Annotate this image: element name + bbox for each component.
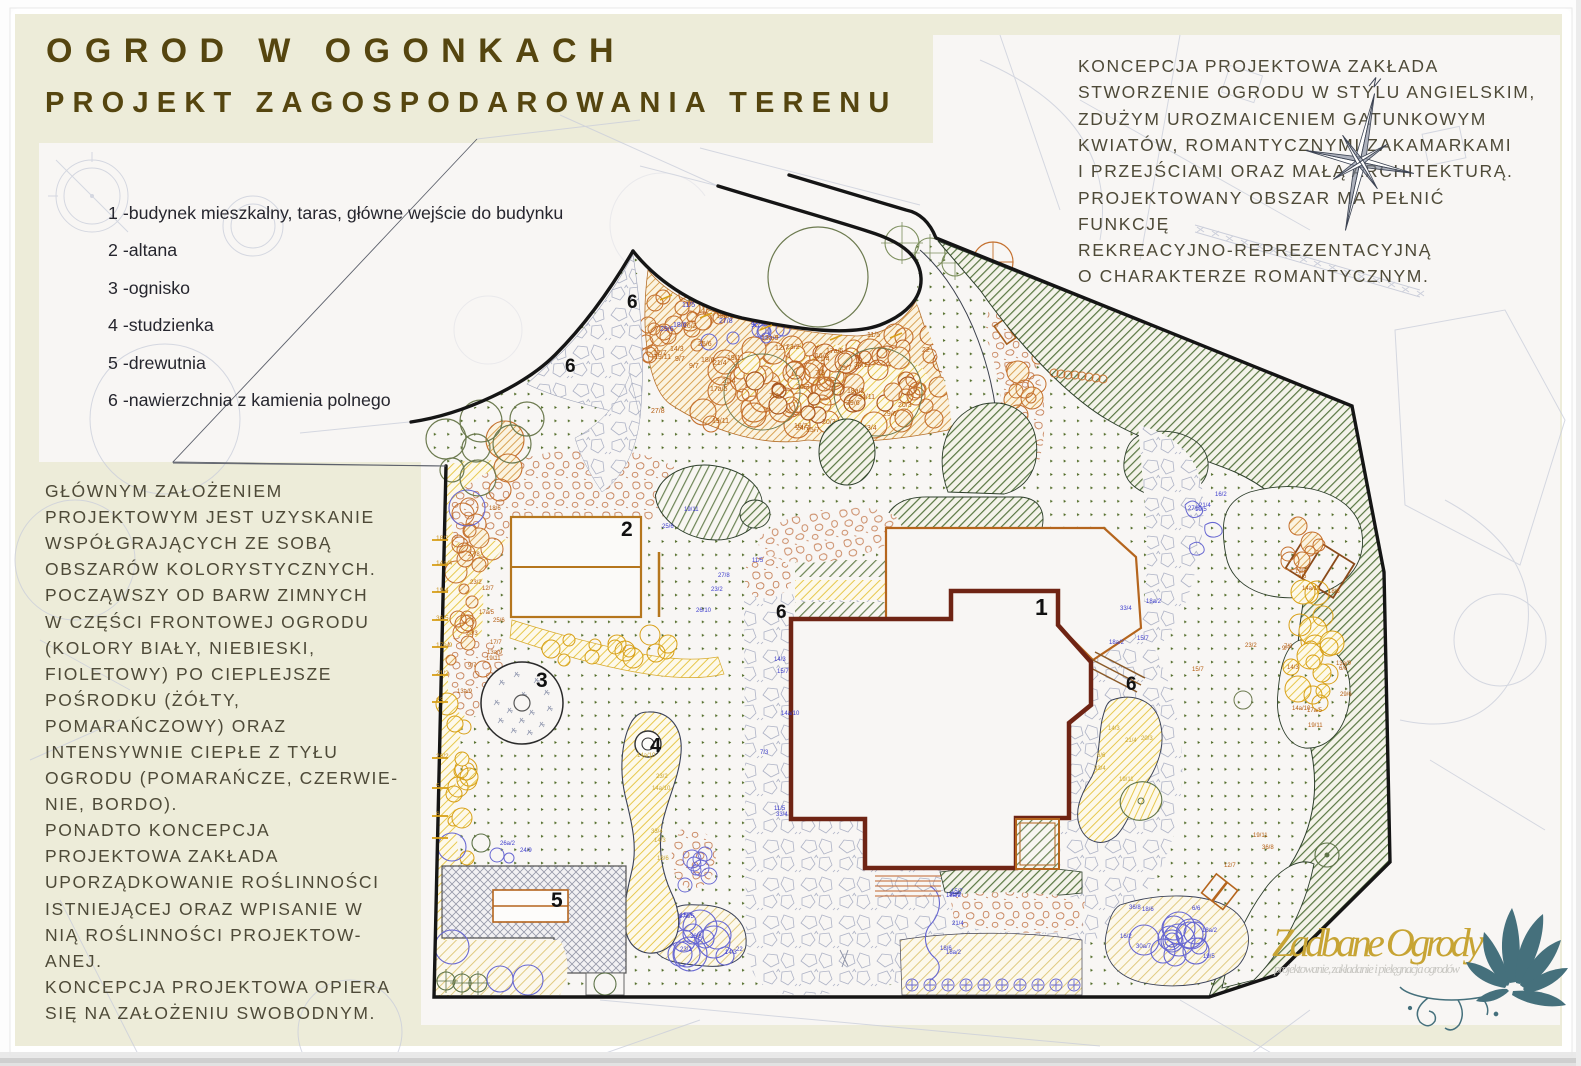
svg-text:KWIATÓW, ROMANTYCZNYMI ZAKAMAR: KWIATÓW, ROMANTYCZNYMI ZAKAMARKAMI <box>1078 134 1512 155</box>
svg-text:29/6: 29/6 <box>846 400 860 407</box>
svg-text:33/4: 33/4 <box>1120 606 1132 612</box>
svg-text:17a/5: 17a/5 <box>479 610 495 616</box>
svg-text:ISTNIEJĄCEJ ORAZ WPISANIE W: ISTNIEJĄCEJ ORAZ WPISANIE W <box>45 899 363 919</box>
svg-text:18/6: 18/6 <box>657 856 669 862</box>
svg-text:PONADTO KONCEPCJA: PONADTO KONCEPCJA <box>45 820 270 840</box>
svg-text:5: 5 <box>436 783 440 790</box>
svg-text:27/8: 27/8 <box>718 573 730 579</box>
svg-text:9/7: 9/7 <box>468 663 477 669</box>
svg-text:13a/9: 13a/9 <box>1336 661 1352 667</box>
svg-text:36/8: 36/8 <box>1129 905 1141 911</box>
svg-text:6: 6 <box>776 602 787 623</box>
svg-text:14a/10: 14a/10 <box>781 711 800 717</box>
svg-text:22: 22 <box>922 347 930 354</box>
svg-text:6 -nawierzchnia z kamienia pol: 6 -nawierzchnia z kamienia polnego <box>108 390 391 410</box>
svg-text:27/8: 27/8 <box>1188 506 1200 512</box>
svg-text:21/4: 21/4 <box>722 378 736 385</box>
svg-text:6/6: 6/6 <box>1192 906 1201 912</box>
svg-text:18a/2: 18a/2 <box>847 388 865 395</box>
svg-text:W CZĘŚCI FRONTOWEJ OGRODU: W CZĘŚCI FRONTOWEJ OGRODU <box>45 611 370 632</box>
svg-text:6/6: 6/6 <box>1097 753 1106 759</box>
svg-text:21/2: 21/2 <box>436 670 449 677</box>
svg-text:FUNKCJĘ: FUNKCJĘ <box>1078 214 1170 234</box>
svg-text:6: 6 <box>627 292 638 313</box>
svg-text:23/2: 23/2 <box>470 580 482 586</box>
svg-text:14a/10: 14a/10 <box>652 786 671 792</box>
svg-text:3 -ognisko: 3 -ognisko <box>108 278 190 298</box>
svg-text:INTENSYWNIE CIEPŁE Z TYŁU: INTENSYWNIE CIEPŁE Z TYŁU <box>45 742 338 762</box>
svg-text:15/7: 15/7 <box>1192 667 1204 673</box>
svg-text:18/2: 18/2 <box>436 535 449 542</box>
svg-text:projektowanie, zakładanie i pi: projektowanie, zakładanie i pielęgnacja … <box>1273 962 1461 976</box>
svg-text:POŚRODKU (ŻÓŁTY,: POŚRODKU (ŻÓŁTY, <box>45 689 240 710</box>
svg-text:23/2: 23/2 <box>680 947 692 953</box>
svg-text:21/4: 21/4 <box>1199 503 1211 509</box>
svg-text:7/3: 7/3 <box>760 750 769 756</box>
svg-text:NIE, BORDO).: NIE, BORDO). <box>45 794 178 814</box>
svg-text:OGROD W OGONKACH: OGROD W OGONKACH <box>46 32 626 70</box>
svg-text:14/3: 14/3 <box>1287 665 1299 671</box>
svg-text:20/3: 20/3 <box>898 402 912 409</box>
svg-text:9/7: 9/7 <box>675 356 685 363</box>
svg-text:19/5: 19/5 <box>1295 569 1307 575</box>
svg-text:30a/7: 30a/7 <box>1136 944 1152 950</box>
svg-text:O CHARAKTERZE ROMANTYCZNYM.: O CHARAKTERZE ROMANTYCZNYM. <box>1078 266 1429 286</box>
svg-text:23/2: 23/2 <box>1245 643 1257 649</box>
svg-text:26/10: 26/10 <box>696 608 712 614</box>
svg-text:PROJEKTOWA ZAKŁADA: PROJEKTOWA ZAKŁADA <box>45 846 279 866</box>
svg-text:OGRODU (POMARAŃCZE, CZERWIE-: OGRODU (POMARAŃCZE, CZERWIE- <box>45 768 399 788</box>
svg-text:25/6: 25/6 <box>493 618 505 624</box>
svg-text:26a/2: 26a/2 <box>500 841 516 847</box>
svg-text:9/7: 9/7 <box>1282 646 1291 652</box>
svg-text:11/5: 11/5 <box>867 332 880 339</box>
svg-text:15/7: 15/7 <box>680 913 692 919</box>
svg-text:1: 1 <box>1035 594 1048 620</box>
svg-text:6: 6 <box>436 811 440 818</box>
svg-text:17a/5: 17a/5 <box>826 348 844 355</box>
svg-text:18a/2: 18a/2 <box>1202 928 1218 934</box>
svg-text:5: 5 <box>551 889 563 912</box>
svg-text:16/2: 16/2 <box>1215 492 1227 498</box>
svg-text:18a/2: 18a/2 <box>1146 599 1162 605</box>
svg-text:11/5: 11/5 <box>752 558 764 564</box>
svg-text:18/6: 18/6 <box>673 322 687 329</box>
svg-text:18/6: 18/6 <box>1142 907 1154 913</box>
svg-text:25/6: 25/6 <box>662 524 674 530</box>
svg-text:19/4: 19/4 <box>436 587 449 594</box>
svg-text:WSPÓŁGRAJĄCYCH ZE SOBĄ: WSPÓŁGRAJĄCYCH ZE SOBĄ <box>45 532 332 553</box>
svg-text:I PRZEJŚCIAMI ORAZ MAŁĄ ARCHIT: I PRZEJŚCIAMI ORAZ MAŁĄ ARCHITEKTURĄ. <box>1078 160 1514 181</box>
svg-text:PROJEKTOWYM JEST UZYSKANIE: PROJEKTOWYM JEST UZYSKANIE <box>45 507 375 527</box>
svg-text:19/11: 19/11 <box>1253 833 1268 839</box>
svg-text:4 -studzienka: 4 -studzienka <box>108 315 214 335</box>
svg-text:21/4: 21/4 <box>1125 738 1137 744</box>
svg-text:15/7: 15/7 <box>838 365 852 372</box>
svg-text:24/9: 24/9 <box>520 848 532 854</box>
svg-text:27/8: 27/8 <box>651 408 665 415</box>
svg-text:POMARAŃCZOWY) ORAZ: POMARAŃCZOWY) ORAZ <box>45 716 287 736</box>
svg-text:18/6: 18/6 <box>1328 589 1340 595</box>
svg-text:12/7: 12/7 <box>482 586 494 592</box>
svg-text:14/3: 14/3 <box>725 950 737 956</box>
svg-text:16/2: 16/2 <box>1120 934 1132 940</box>
svg-text:4: 4 <box>650 735 662 757</box>
svg-text:GŁÓWNYM ZAŁOŻENIEM: GŁÓWNYM ZAŁOŻENIEM <box>45 480 283 501</box>
svg-text:23/2: 23/2 <box>786 344 800 351</box>
svg-text:23: 23 <box>436 697 444 704</box>
svg-text:29/6: 29/6 <box>883 411 897 418</box>
svg-text:KONCEPCJA PROJEKTOWA OPIERA: KONCEPCJA PROJEKTOWA OPIERA <box>45 977 391 997</box>
svg-text:FIOLETOWY) PO CIEPLEJSZE: FIOLETOWY) PO CIEPLEJSZE <box>45 664 332 684</box>
svg-text:14a/4: 14a/4 <box>436 560 453 567</box>
svg-text:6: 6 <box>565 356 576 377</box>
svg-text:7/3: 7/3 <box>769 393 779 400</box>
svg-text:14a/10: 14a/10 <box>1302 586 1321 592</box>
svg-text:REKREACYJNO-REPREZENTACYJNĄ: REKREACYJNO-REPREZENTACYJNĄ <box>1078 240 1432 260</box>
svg-text:13a/9: 13a/9 <box>761 335 779 342</box>
svg-text:17a/9: 17a/9 <box>436 642 453 649</box>
svg-text:18a/2: 18a/2 <box>946 893 962 899</box>
svg-text:2 -altana: 2 -altana <box>108 240 177 260</box>
svg-text:14/3: 14/3 <box>654 838 666 844</box>
svg-text:17/7: 17/7 <box>490 640 502 646</box>
svg-text:STWORZENIE OGRODU W STYLU ANGI: STWORZENIE OGRODU W STYLU ANGIELSKIM, <box>1078 82 1536 102</box>
svg-text:29/6: 29/6 <box>660 326 674 333</box>
svg-text:33/4: 33/4 <box>1094 766 1106 772</box>
svg-text:19/11: 19/11 <box>1308 723 1323 729</box>
svg-text:20/3: 20/3 <box>1141 736 1153 742</box>
svg-text:(KOLORY BIAŁY, NIEBIESKI,: (KOLORY BIAŁY, NIEBIESKI, <box>45 638 316 658</box>
svg-text:36/8: 36/8 <box>1262 845 1274 851</box>
svg-text:23/2: 23/2 <box>711 587 723 593</box>
svg-text:PROJEKTOWANY OBSZAR MA PEŁNIĆ: PROJEKTOWANY OBSZAR MA PEŁNIĆ <box>1078 187 1445 208</box>
svg-text:19/5: 19/5 <box>1203 954 1215 960</box>
svg-text:14/3: 14/3 <box>774 657 786 663</box>
svg-text:PROJEKT ZAGOSPODAROWANIA TEREN: PROJEKT ZAGOSPODAROWANIA TERENU <box>45 87 898 119</box>
svg-text:POCZĄWSZY OD BARW ZIMNYCH: POCZĄWSZY OD BARW ZIMNYCH <box>45 585 368 605</box>
svg-text:14/3: 14/3 <box>1108 726 1120 732</box>
svg-text:20/3: 20/3 <box>796 384 810 391</box>
svg-text:5 -drewutnia: 5 -drewutnia <box>108 353 206 373</box>
svg-text:15/7: 15/7 <box>1137 636 1149 642</box>
svg-text:3: 3 <box>536 669 548 692</box>
svg-text:27/8: 27/8 <box>468 552 480 558</box>
svg-text:20/3: 20/3 <box>466 631 478 637</box>
svg-text:12/7: 12/7 <box>1224 863 1236 869</box>
svg-text:14/3: 14/3 <box>670 346 684 353</box>
svg-text:7/3: 7/3 <box>815 370 825 377</box>
svg-text:15/7: 15/7 <box>777 669 789 675</box>
svg-text:18/6: 18/6 <box>701 357 715 364</box>
svg-text:1 -budynek mieszkalny, taras,: 1 -budynek mieszkalny, taras, główne wej… <box>108 203 563 223</box>
svg-text:ZDUŻYM UROZMAICENIEM GATUNKOWY: ZDUŻYM UROZMAICENIEM GATUNKOWYM <box>1078 109 1487 129</box>
svg-text:18a/2: 18a/2 <box>946 950 962 956</box>
svg-text:34/11: 34/11 <box>858 394 875 401</box>
svg-text:19/11: 19/11 <box>486 656 501 662</box>
svg-text:SIĘ NA ZAŁOŻENIU SWOBODNYM.: SIĘ NA ZAŁOŻENIU SWOBODNYM. <box>45 1003 376 1023</box>
svg-text:UPORZĄDKOWANIE ROŚLINNOŚCI: UPORZĄDKOWANIE ROŚLINNOŚCI <box>45 871 380 892</box>
svg-text:25/6: 25/6 <box>698 341 712 348</box>
svg-text:21/4: 21/4 <box>952 921 964 927</box>
svg-text:22: 22 <box>736 947 743 953</box>
svg-text:ANEJ.: ANEJ. <box>45 951 103 971</box>
svg-text:14a/10: 14a/10 <box>1292 706 1311 712</box>
svg-text:13a/9: 13a/9 <box>457 689 473 695</box>
svg-text:34/11: 34/11 <box>854 362 871 369</box>
svg-text:9/7: 9/7 <box>689 363 699 370</box>
svg-text:NIĄ ROŚLINNOŚCI PROJEKTOW-: NIĄ ROŚLINNOŚCI PROJEKTOW- <box>45 924 362 945</box>
svg-text:6: 6 <box>1126 674 1137 695</box>
svg-text:24/7: 24/7 <box>796 425 810 432</box>
svg-text:26/2: 26/2 <box>436 753 449 760</box>
svg-text:36/5: 36/5 <box>436 615 449 622</box>
svg-text:19/11: 19/11 <box>727 355 744 362</box>
svg-text:18a/2: 18a/2 <box>1109 640 1125 646</box>
svg-text:27/8: 27/8 <box>719 318 733 325</box>
svg-text:33/4: 33/4 <box>776 812 788 818</box>
svg-text:Zadbane Ogrody: Zadbane Ogrody <box>1272 920 1484 965</box>
svg-text:19/11: 19/11 <box>712 418 729 425</box>
svg-text:18/6: 18/6 <box>489 506 501 512</box>
svg-text:33/4: 33/4 <box>651 829 663 835</box>
svg-text:2: 2 <box>621 518 633 541</box>
svg-text:OBSZARÓW KOLORYSTYCZNYCH.: OBSZARÓW KOLORYSTYCZNYCH. <box>45 558 376 579</box>
svg-text:KONCEPCJA PROJEKTOWA ZAKŁADA: KONCEPCJA PROJEKTOWA ZAKŁADA <box>1078 56 1439 76</box>
svg-text:29/6: 29/6 <box>1340 692 1352 698</box>
svg-text:19/11: 19/11 <box>1119 777 1134 783</box>
svg-text:17a/5: 17a/5 <box>710 386 728 393</box>
svg-text:23/2: 23/2 <box>656 774 668 780</box>
svg-text:19/11: 19/11 <box>684 507 699 513</box>
svg-text:11/5: 11/5 <box>682 302 695 309</box>
svg-text:19/11: 19/11 <box>654 354 671 361</box>
svg-text:36/8: 36/8 <box>690 934 702 940</box>
svg-text:21/4: 21/4 <box>713 360 727 367</box>
